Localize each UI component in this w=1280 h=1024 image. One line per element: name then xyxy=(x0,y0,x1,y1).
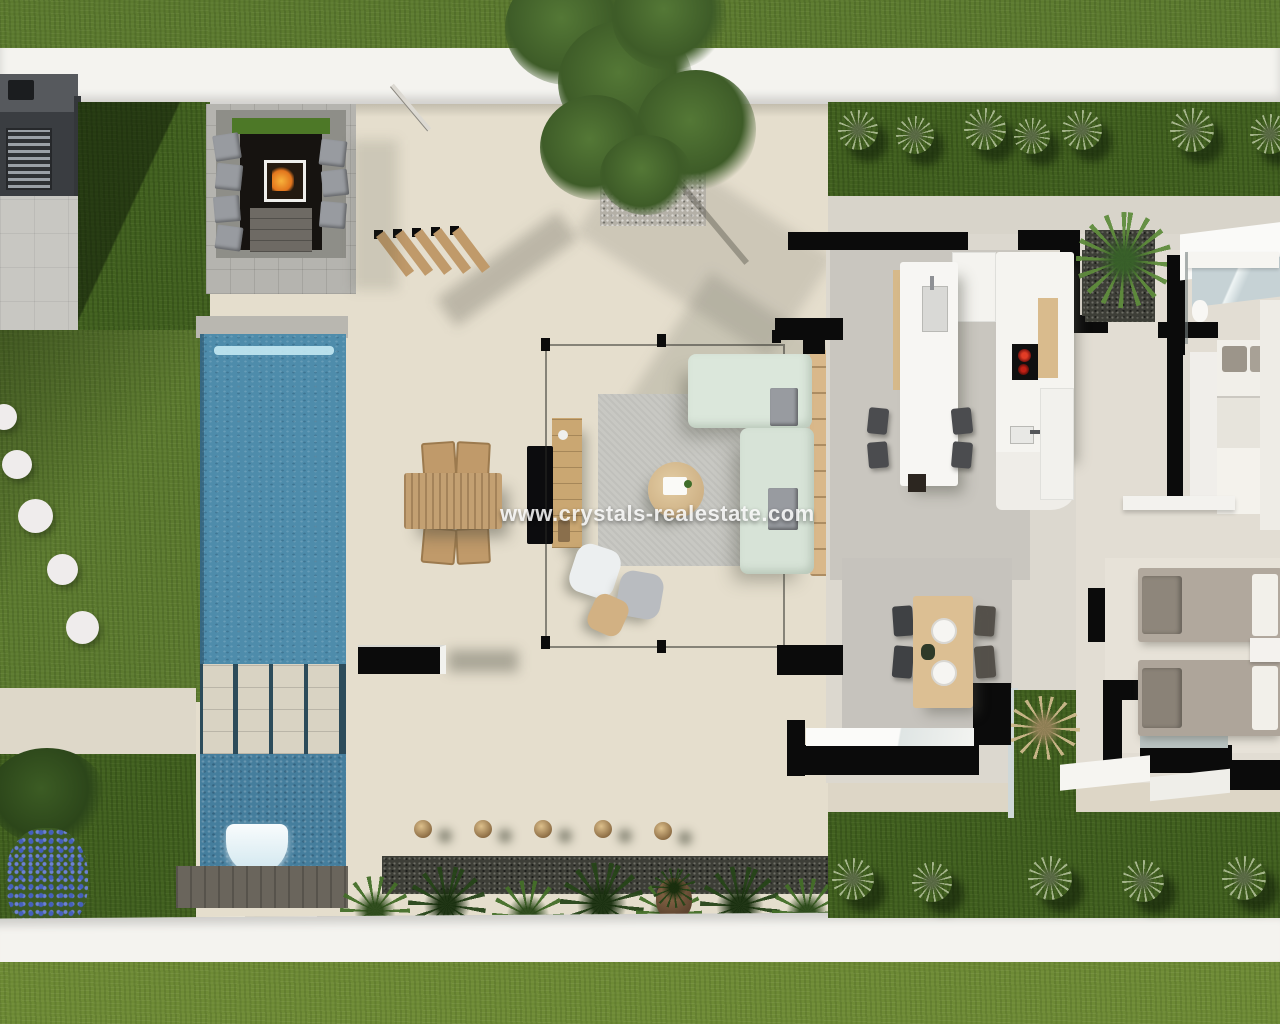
lounge-cushion xyxy=(321,169,350,198)
ornamental-grass xyxy=(912,862,952,902)
dining-chair xyxy=(455,527,491,565)
lounge-cushion xyxy=(215,163,244,192)
villa-floorplan-render: www.crystals-realestate.com xyxy=(0,0,1280,1024)
ornamental-grass xyxy=(1170,108,1214,152)
pool-end-wall xyxy=(176,866,348,908)
left-garden-path xyxy=(0,688,196,758)
ornamental-grass xyxy=(838,110,878,150)
bbq-hood xyxy=(8,80,34,100)
tree-canopy xyxy=(600,135,692,215)
lounge-cushion xyxy=(214,224,243,251)
dining-chair-indoor xyxy=(892,605,914,636)
house-wall xyxy=(1140,745,1232,773)
lounge-cushion xyxy=(213,195,241,223)
house-wall xyxy=(1158,322,1218,338)
lounge-cushion xyxy=(319,139,348,168)
house-wall xyxy=(1167,338,1183,503)
pool-stepping-slab xyxy=(238,664,269,754)
outdoor-kitchen-pad xyxy=(0,196,80,336)
pool-stepping-slab xyxy=(273,664,304,754)
house-wall xyxy=(1018,230,1080,250)
palm-tree xyxy=(1076,212,1172,308)
single-bed xyxy=(1138,568,1280,642)
pergola-post xyxy=(657,334,666,347)
pergola-post xyxy=(657,640,666,653)
fire-pit-steps xyxy=(250,208,312,252)
hall-wardrobe xyxy=(1040,388,1074,500)
table-plant xyxy=(684,480,692,488)
sliding-glass-door xyxy=(806,728,974,746)
fire-pit-grass-edge xyxy=(232,118,330,134)
kitchen-island xyxy=(900,262,958,486)
lounge-cushion xyxy=(319,201,347,229)
lounge-cushion xyxy=(212,132,242,162)
pergola-post xyxy=(541,636,550,649)
pool-stepping-slab xyxy=(308,664,339,754)
house-wall xyxy=(777,645,843,675)
pool-light-lane xyxy=(214,346,334,355)
bar-stool xyxy=(951,407,974,435)
small-pot xyxy=(414,820,432,838)
table-centerpiece xyxy=(921,644,935,660)
place-setting xyxy=(931,618,957,644)
hob-ring xyxy=(1018,364,1029,375)
bathroom-vanity xyxy=(1187,252,1279,268)
flame xyxy=(272,167,294,191)
house-wall xyxy=(1103,680,1141,700)
shower-glass xyxy=(1185,252,1188,344)
stepping-stone xyxy=(47,554,78,585)
folded-blanket xyxy=(1142,576,1182,634)
small-pot xyxy=(594,820,612,838)
bar-stool xyxy=(867,407,890,435)
pool-water xyxy=(200,334,346,666)
dining-chair xyxy=(455,441,491,477)
bar-stool xyxy=(867,441,889,469)
house-wall xyxy=(788,232,968,250)
stepping-stone xyxy=(2,450,32,479)
house-wall xyxy=(973,683,1011,745)
folded-blanket xyxy=(1142,668,1182,728)
bottom-lawn xyxy=(0,962,1280,1024)
house-wall xyxy=(787,745,979,775)
lawn-shade xyxy=(78,102,210,334)
ornamental-grass xyxy=(1122,860,1164,902)
dining-chair-indoor xyxy=(892,645,915,679)
oven-column xyxy=(952,252,996,322)
ornamental-grass xyxy=(832,858,874,900)
coffee-table-tray xyxy=(663,477,687,495)
small-pot xyxy=(534,820,552,838)
watermark: www.crystals-realestate.com xyxy=(500,501,780,527)
small-pot xyxy=(474,820,492,838)
hob-ring xyxy=(1018,349,1031,362)
pergola-post xyxy=(541,338,550,351)
bbq-grill xyxy=(6,128,52,190)
ornamental-grass xyxy=(964,108,1006,150)
house-wall xyxy=(775,318,843,340)
pot-plant xyxy=(652,868,696,908)
bed-pillow xyxy=(1222,346,1247,372)
dining-chair-indoor xyxy=(974,645,997,679)
firepit-shadow xyxy=(352,140,398,290)
ornamental-grass xyxy=(896,116,934,154)
counter-faucet xyxy=(1030,430,1040,434)
pampas-plant xyxy=(1008,696,1080,760)
ornamental-grass xyxy=(1014,118,1050,154)
bed-pillow xyxy=(1252,666,1278,730)
nightstand xyxy=(1250,638,1280,662)
bed-pillow xyxy=(1252,574,1278,636)
dining-chair xyxy=(420,527,457,566)
counter-wood-panel xyxy=(1038,298,1058,378)
stepping-stone xyxy=(66,611,99,644)
island-faucet xyxy=(930,276,934,290)
house xyxy=(780,228,1280,778)
east-wall xyxy=(1260,300,1280,530)
ornamental-grass xyxy=(1222,856,1266,900)
cutting-board xyxy=(908,474,926,492)
half-wall xyxy=(1123,496,1235,510)
induction-hob xyxy=(1012,344,1038,380)
house-wall xyxy=(1228,760,1280,790)
indoor-dining-table xyxy=(913,596,973,708)
pool-stepping-slab xyxy=(203,664,233,754)
ornamental-grass xyxy=(1028,856,1072,900)
bedroom-glass-door xyxy=(1140,736,1228,748)
place-setting xyxy=(931,660,957,686)
hydrangea-bush xyxy=(6,828,88,932)
single-bed xyxy=(1138,660,1280,736)
house-wall xyxy=(803,340,825,354)
bar-stool xyxy=(951,441,973,469)
ornamental-grass xyxy=(1062,110,1102,150)
counter-sink xyxy=(1010,426,1034,444)
dining-chair xyxy=(421,441,457,477)
dining-chair-indoor xyxy=(974,605,996,636)
planter-shadow xyxy=(448,650,518,672)
house-wall xyxy=(1088,588,1105,642)
small-pot xyxy=(654,822,672,840)
stepping-stone xyxy=(18,499,53,533)
fire-feature xyxy=(264,160,306,202)
black-planter-box xyxy=(358,645,446,674)
outdoor-dining-table xyxy=(404,473,502,529)
toilet xyxy=(1192,300,1208,322)
fire-pit-lounge xyxy=(206,104,356,294)
pool-edge-shadow xyxy=(200,334,204,666)
island-sink xyxy=(922,286,948,332)
right-garden-lawn xyxy=(828,102,1280,200)
